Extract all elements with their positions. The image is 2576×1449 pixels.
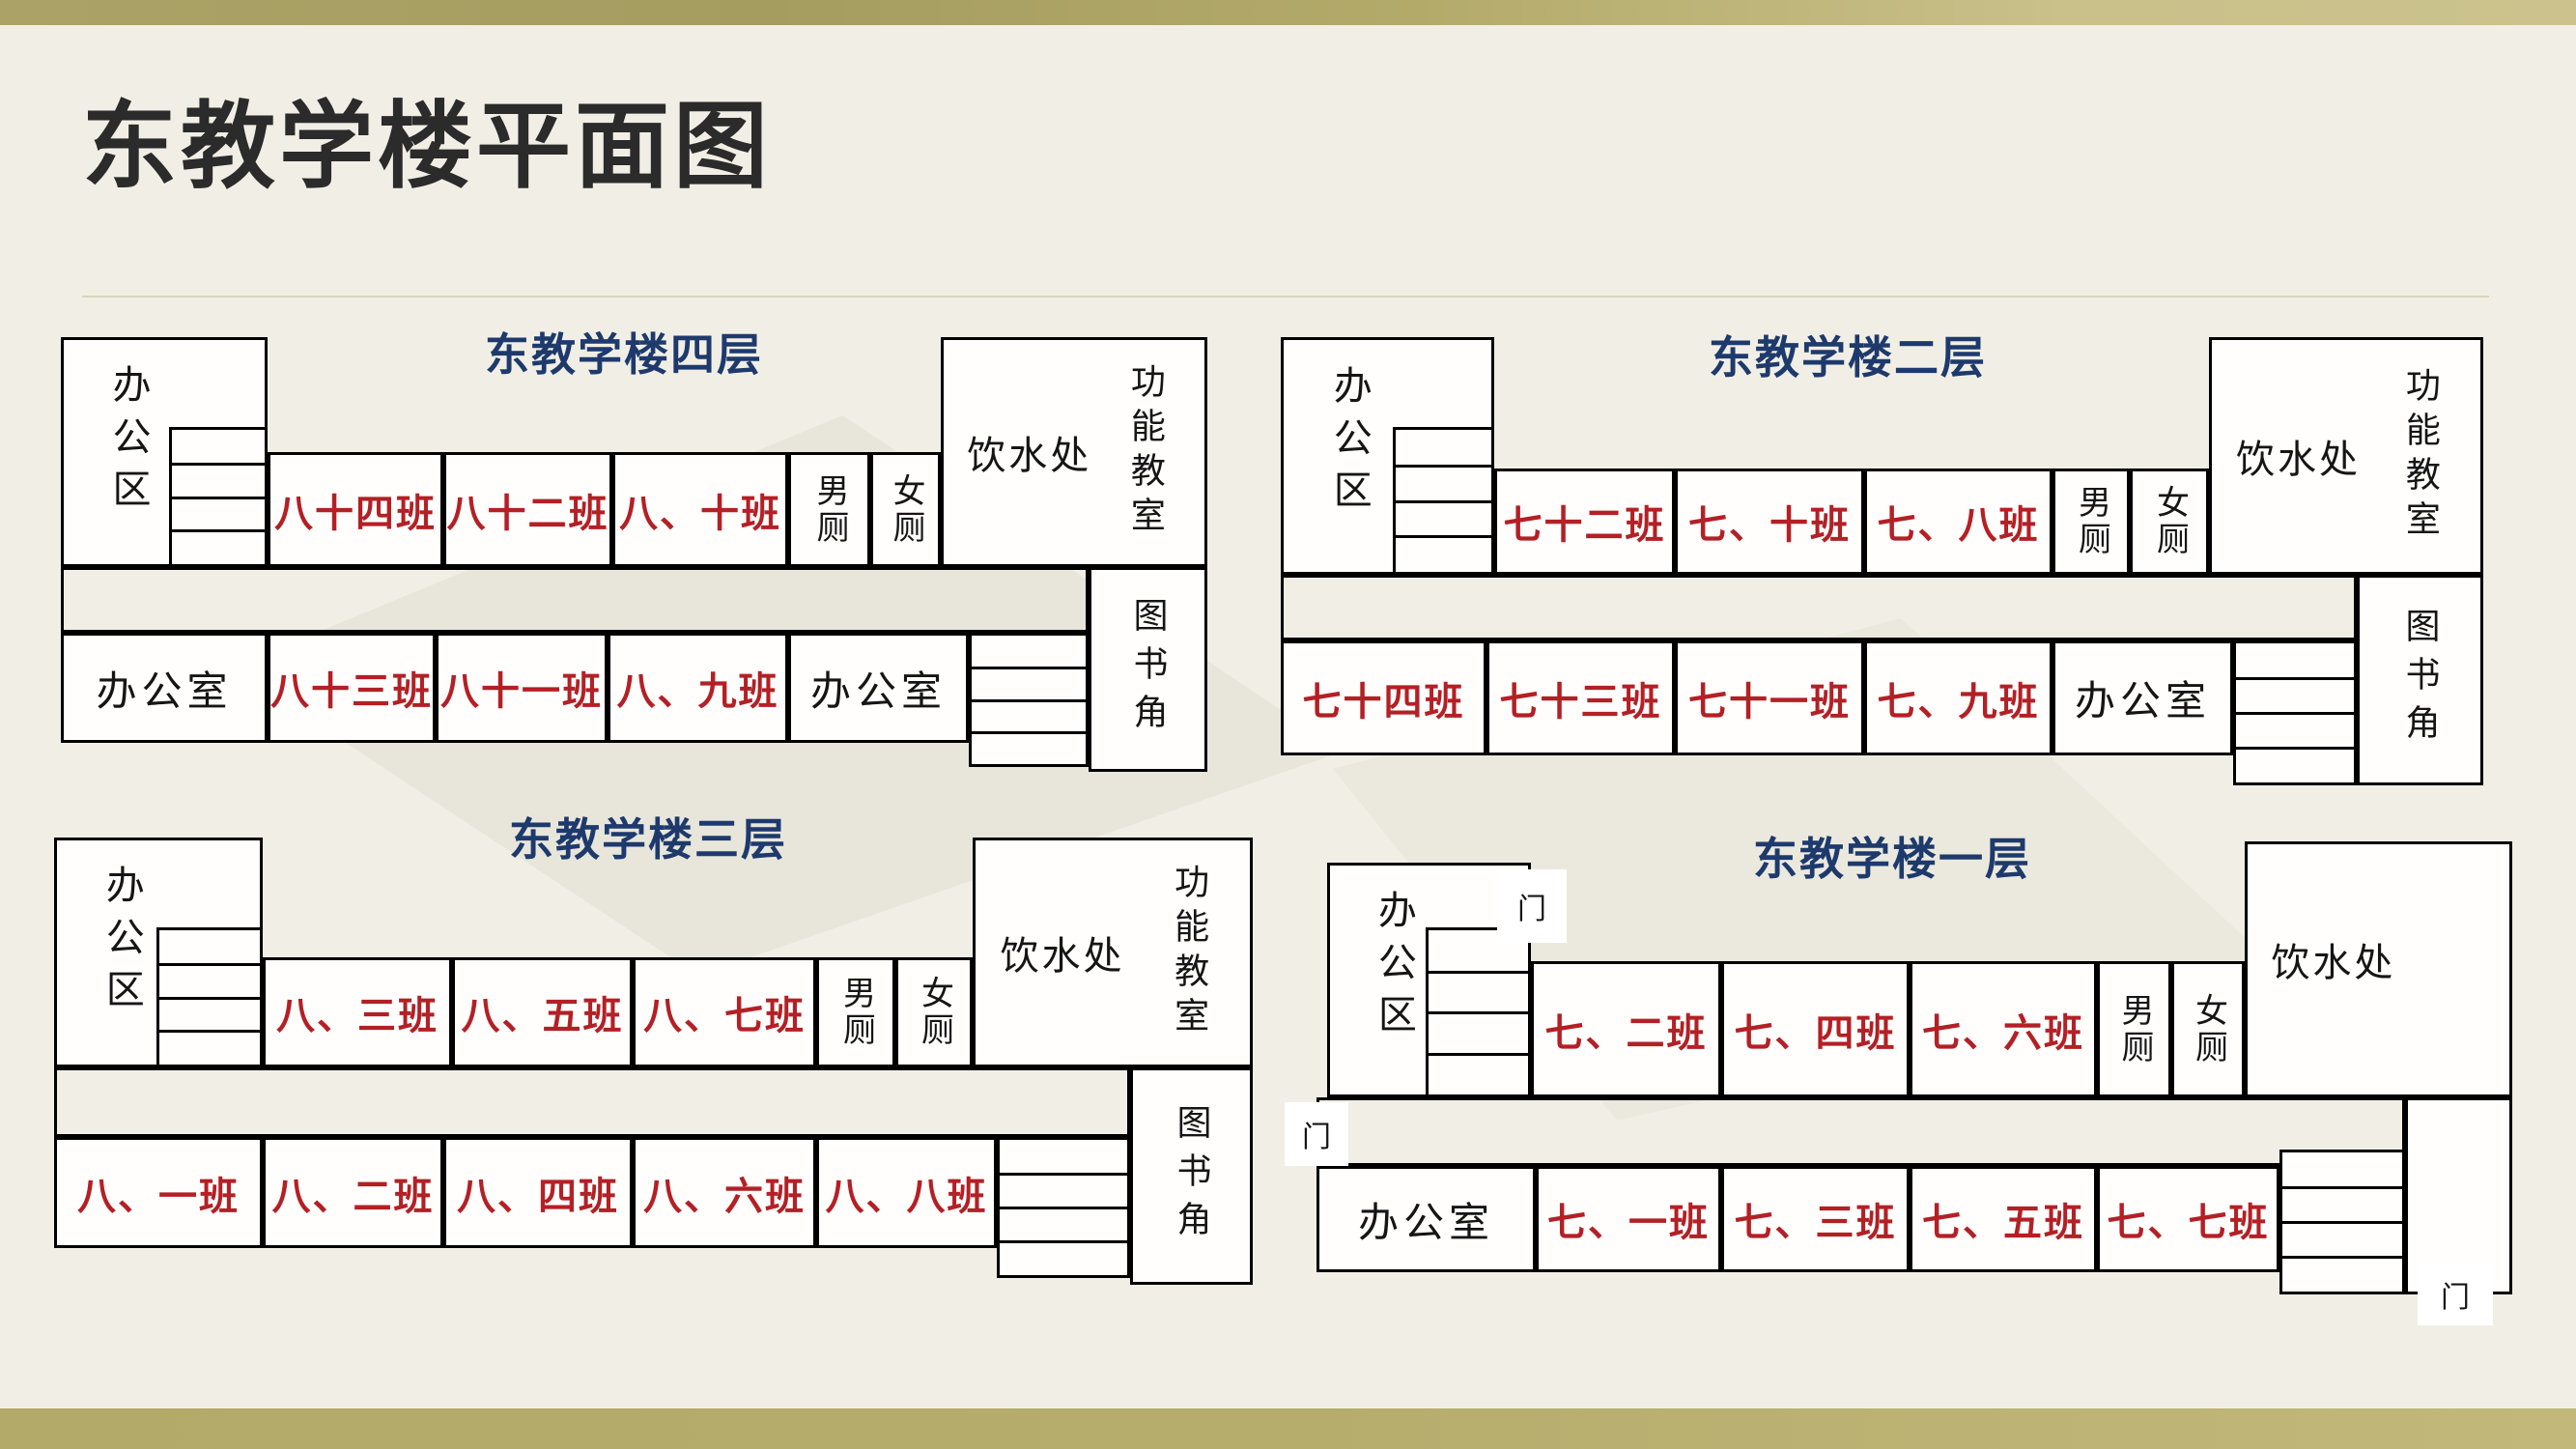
classroom-label: 八、九班 [617,660,779,716]
classroom-room: 七十一班 [1675,640,1864,755]
stair-step-line [2236,747,2354,750]
water-station-label: 饮水处 [1001,924,1125,980]
classroom-room: 七、六班 [1910,961,2097,1097]
staircase-west [169,427,268,567]
toilet-label: 女厕 [911,976,958,1049]
classroom-label: 八十一班 [440,660,603,716]
corridor [1281,575,2357,640]
bottom-accent-bar [0,1408,2576,1449]
classroom-room: 八、三班 [263,957,452,1067]
stair-step-line [972,731,1086,734]
toilet-room: 男厕 [788,452,870,567]
water-function-room: 饮水处功能教室 [941,337,1207,567]
toilet-label: 女厕 [882,473,929,547]
stair-step-line [172,497,265,499]
stair-step-line [1396,465,1491,468]
classroom-room: 七十四班 [1281,640,1486,755]
classroom-label: 七、四班 [1735,1002,1897,1058]
classroom-room: 八、九班 [608,633,788,743]
classroom-room: 七、三班 [1721,1166,1910,1272]
function-room-label: 功能教室 [1164,864,1214,1041]
classroom-room: 八十一班 [436,633,608,743]
classroom-label: 八、一班 [77,1165,240,1221]
classroom-label: 七、二班 [1545,1002,1708,1058]
classroom-room: 七、四班 [1721,961,1910,1097]
classroom-label: 七、九班 [1878,670,2040,726]
classroom-room: 八十四班 [268,452,443,567]
classroom-label: 八十三班 [270,660,433,716]
page-title: 东教学楼平面图 [82,70,772,207]
stair-step-line [159,1030,260,1033]
toilet-label: 女厕 [2146,485,2194,558]
classroom-label: 八十四班 [274,482,437,538]
classroom-label: 八、五班 [462,984,624,1040]
water-station-label: 饮水处 [2271,931,2395,987]
stair-step-line [1429,971,1528,974]
classroom-label: 七、一班 [1547,1191,1710,1247]
classroom-room: 八、七班 [633,957,816,1067]
book-corner-room: 图书角 [1130,1067,1253,1285]
toilet-room: 男厕 [816,957,895,1067]
toilet-room: 女厕 [2171,961,2245,1097]
stair-step-line [972,699,1086,702]
stair-step-line [2236,677,2354,680]
office-area-label: 办公区 [99,364,156,521]
stair-step-line [1429,1011,1528,1014]
office-label: 办公室 [96,659,232,718]
classroom-label: 七、八班 [1878,494,2040,550]
stair-step-line [2282,1221,2402,1224]
classroom-label: 七、十班 [1688,494,1851,550]
classroom-room: 七、二班 [1531,961,1721,1097]
classroom-label: 七十一班 [1688,670,1851,726]
classroom-room: 八、六班 [633,1137,816,1248]
toilet-room: 女厕 [2130,469,2209,575]
water-station-label: 饮水处 [2236,428,2361,484]
office-area-label: 办公区 [94,865,150,1021]
office-area-label: 办公区 [1321,365,1377,522]
classroom-room: 八十二班 [443,452,612,567]
classroom-label: 八十二班 [447,482,609,538]
book-corner-room: 图书角 [1089,567,1207,772]
corridor [61,567,1089,633]
classroom-label: 七十二班 [1504,494,1666,550]
classroom-label: 七、三班 [1735,1191,1897,1247]
stair-step-line [1396,500,1491,503]
floor-subtitle-3: 东教学楼三层 [431,805,865,868]
staircase-east [969,633,1089,767]
staircase-east [2233,640,2357,785]
toilet-room: 男厕 [2097,961,2171,1097]
function-room-label: 功能教室 [2395,367,2446,545]
classroom-room: 八、五班 [452,957,633,1067]
staircase-east [997,1137,1130,1278]
corridor [1316,1097,2405,1166]
floor-subtitle-1: 东教学楼一层 [1675,824,2109,888]
book-corner-label: 图书角 [1167,1104,1217,1249]
classroom-room: 八、八班 [816,1137,997,1248]
office-label: 办公室 [2075,668,2211,727]
stair-step-line [159,997,260,1000]
slide-canvas: 东教学楼平面图 东教学楼四层 东教学楼二层 东教学楼三层 东教学楼一层 办公区八… [0,0,2576,1449]
classroom-label: 七十四班 [1303,670,1465,726]
stair-step-line [2282,1256,2402,1259]
function-room-label: 功能教室 [1120,363,1171,541]
stair-step-line [2236,712,2354,715]
water-station-label: 饮水处 [967,424,1091,480]
book-corner-room: 图书角 [2357,575,2483,785]
stair-step-line [1396,535,1491,538]
stair-step-line [972,667,1086,669]
book-corner-label: 图书角 [2395,608,2446,753]
office-room: 办公室 [788,633,969,743]
classroom-room: 八、十班 [612,452,788,567]
water-function-room: 饮水处功能教室 [973,838,1253,1067]
toilet-room: 男厕 [2052,469,2130,575]
entrance-door-label-west: 门 [1285,1102,1348,1166]
floor-subtitle-2: 东教学楼二层 [1630,323,2065,386]
entrance-door-label-north: 门 [1497,869,1567,943]
floor-subtitle-4: 东教学楼四层 [407,320,841,384]
office-room: 办公室 [2052,640,2233,755]
stair-step-line [2282,1186,2402,1189]
classroom-room: 七、一班 [1536,1166,1721,1272]
classroom-room: 八、一班 [54,1137,263,1248]
office-room: 办公室 [61,633,268,743]
book-corner-label: 图书角 [1123,597,1174,742]
classroom-room: 八、四班 [443,1137,633,1248]
classroom-room: 七、七班 [2097,1166,2279,1272]
classroom-label: 八、三班 [276,984,439,1040]
classroom-room: 七、九班 [1864,640,2052,755]
classroom-label: 七、七班 [2108,1191,2270,1247]
title-divider-line [82,296,2489,298]
classroom-room: 七十三班 [1486,640,1675,755]
toilet-label: 男厕 [833,976,880,1049]
stair-step-line [1000,1207,1127,1209]
classroom-label: 七、六班 [1922,1002,2084,1058]
classroom-room: 八、二班 [263,1137,443,1248]
water-station-room: 饮水处 [2245,841,2512,1097]
toilet-label: 女厕 [2185,993,2232,1066]
classroom-room: 七、十班 [1675,469,1864,575]
classroom-label: 七、五班 [1922,1191,2084,1247]
classroom-label: 七十三班 [1500,670,1662,726]
classroom-room: 七、八班 [1864,469,2052,575]
office-label: 办公室 [1358,1190,1494,1249]
water-function-room: 饮水处功能教室 [2209,337,2483,575]
stair-step-line [172,463,265,466]
toilet-label: 男厕 [806,473,853,547]
classroom-label: 八、四班 [457,1165,619,1221]
office-area-label: 办公区 [1366,890,1422,1046]
top-accent-bar [0,0,2576,25]
stair-step-line [172,529,265,532]
classroom-label: 八、六班 [643,1165,806,1221]
stair-step-line [159,963,260,966]
entrance-door-label-south: 门 [2418,1264,2493,1325]
stair-step-line [1000,1240,1127,1243]
toilet-room: 女厕 [870,452,941,567]
staircase-west [1393,427,1494,575]
classroom-label: 八、七班 [643,984,806,1040]
corridor [54,1067,1130,1137]
staircase-west [156,927,263,1067]
classroom-room: 八十三班 [268,633,436,743]
toilet-room: 女厕 [895,957,973,1067]
stair-step-line [1429,1053,1528,1056]
toilet-label: 男厕 [2068,485,2115,558]
office-room: 办公室 [1316,1166,1536,1272]
classroom-label: 八、十班 [619,482,781,538]
classroom-room: 七、五班 [1910,1166,2097,1272]
staircase-west [1426,927,1531,1097]
stair-step-line [1000,1173,1127,1176]
staircase-east [2279,1150,2405,1294]
office-label: 办公室 [810,659,947,718]
classroom-room: 七十二班 [1494,469,1675,575]
classroom-label: 八、八班 [826,1165,988,1221]
classroom-label: 八、二班 [272,1165,435,1221]
toilet-label: 男厕 [2110,993,2158,1066]
